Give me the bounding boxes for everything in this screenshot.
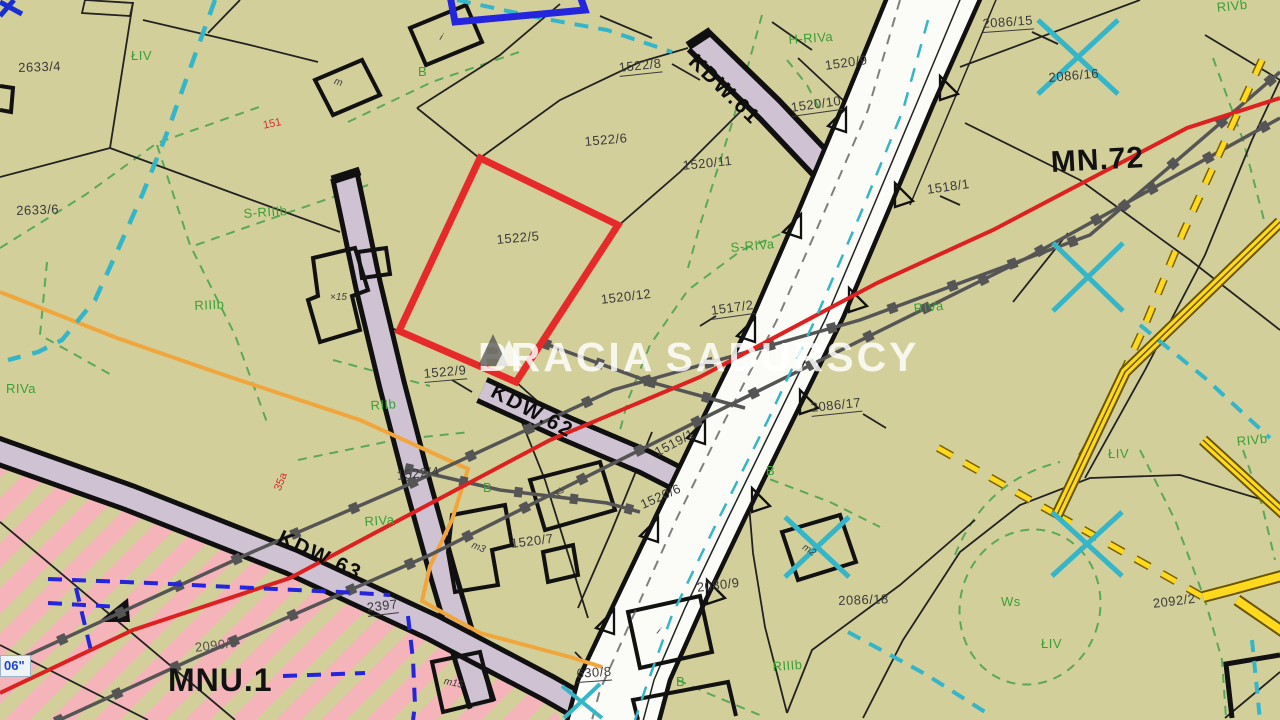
pipe-diameter-label: 06" bbox=[0, 655, 31, 677]
watermark-text-right: SADURSCY bbox=[665, 334, 919, 381]
watermark-logo-icon bbox=[478, 334, 522, 366]
cadastral-map-canvas[interactable]: 2633/4 2633/6 1522/8 1520/9 1520/10 1520… bbox=[0, 0, 1280, 720]
watermark: BRACIA SADURSCY bbox=[478, 334, 920, 381]
